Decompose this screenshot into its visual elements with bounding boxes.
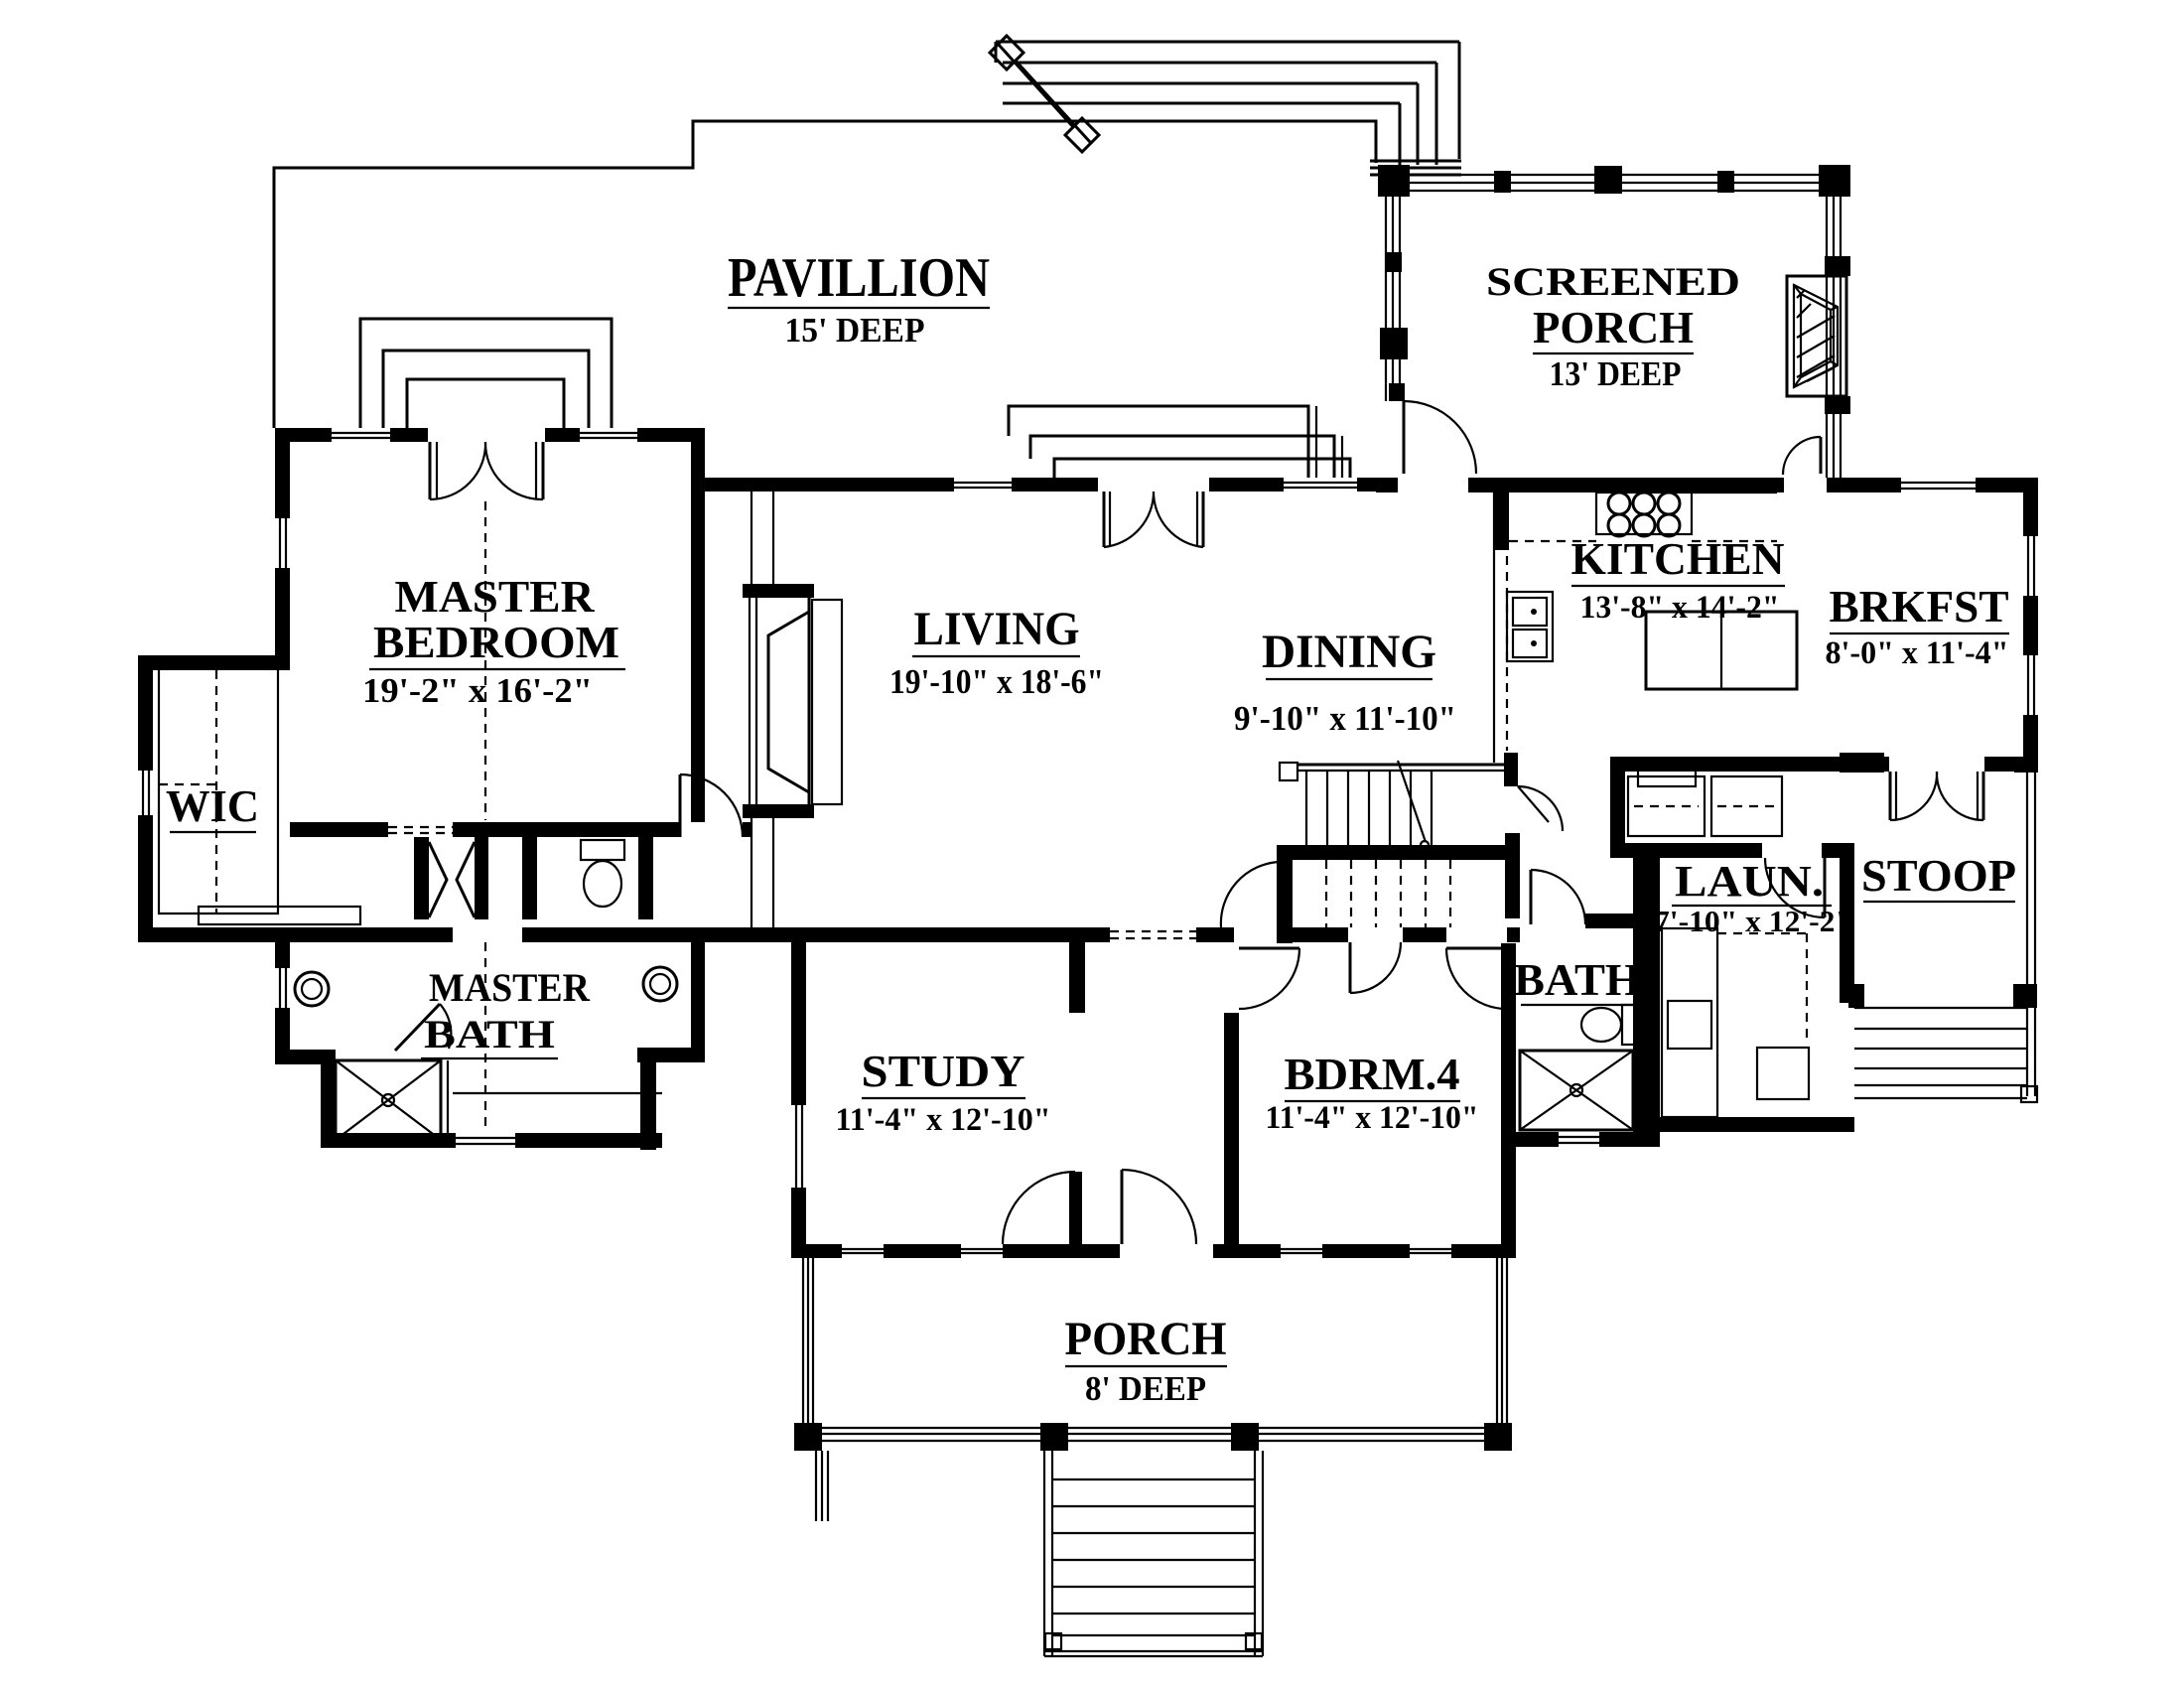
svg-text:BATH: BATH [424, 1012, 555, 1056]
svg-text:BDRM.4: BDRM.4 [1285, 1049, 1460, 1099]
svg-text:PORCH: PORCH [1065, 1313, 1227, 1365]
svg-text:STUDY: STUDY [862, 1046, 1025, 1096]
svg-text:WIC: WIC [166, 780, 259, 831]
svg-text:BEDROOM: BEDROOM [373, 617, 619, 667]
svg-text:19'-2" x 16'-2": 19'-2" x 16'-2" [362, 671, 593, 710]
svg-text:MASTER: MASTER [395, 571, 596, 622]
svg-text:DINING: DINING [1262, 626, 1436, 678]
svg-text:8'-0" x 11'-4": 8'-0" x 11'-4" [1826, 635, 2009, 671]
svg-text:11'-4" x 12'-10": 11'-4" x 12'-10" [836, 1102, 1051, 1138]
svg-text:9'-10" x 11'-10": 9'-10" x 11'-10" [1234, 699, 1456, 738]
svg-text:13' DEEP: 13' DEEP [1550, 354, 1682, 393]
svg-text:STOOP: STOOP [1861, 850, 2016, 901]
svg-text:PORCH: PORCH [1533, 302, 1694, 352]
svg-text:LIVING: LIVING [914, 603, 1080, 655]
svg-text:13'-8" x 14'-2": 13'-8" x 14'-2" [1580, 590, 1780, 626]
svg-text:SCREENED: SCREENED [1486, 259, 1740, 304]
svg-text:7'-10" x 12'-2": 7'-10" x 12'-2" [1654, 904, 1852, 938]
svg-text:BATH: BATH [1514, 954, 1641, 1005]
svg-text:LAUN.: LAUN. [1675, 857, 1824, 906]
svg-text:11'-4" x 12'-10": 11'-4" x 12'-10" [1266, 1100, 1479, 1136]
svg-text:PAVILLION: PAVILLION [728, 247, 990, 309]
svg-text:19'-10" x 18'-6": 19'-10" x 18'-6" [889, 662, 1104, 701]
svg-text:8' DEEP: 8' DEEP [1085, 1369, 1206, 1408]
svg-text:15' DEEP: 15' DEEP [785, 311, 925, 350]
svg-text:BRKFST: BRKFST [1830, 581, 2009, 632]
svg-text:MASTER: MASTER [429, 965, 591, 1010]
svg-text:KITCHEN: KITCHEN [1571, 533, 1785, 584]
